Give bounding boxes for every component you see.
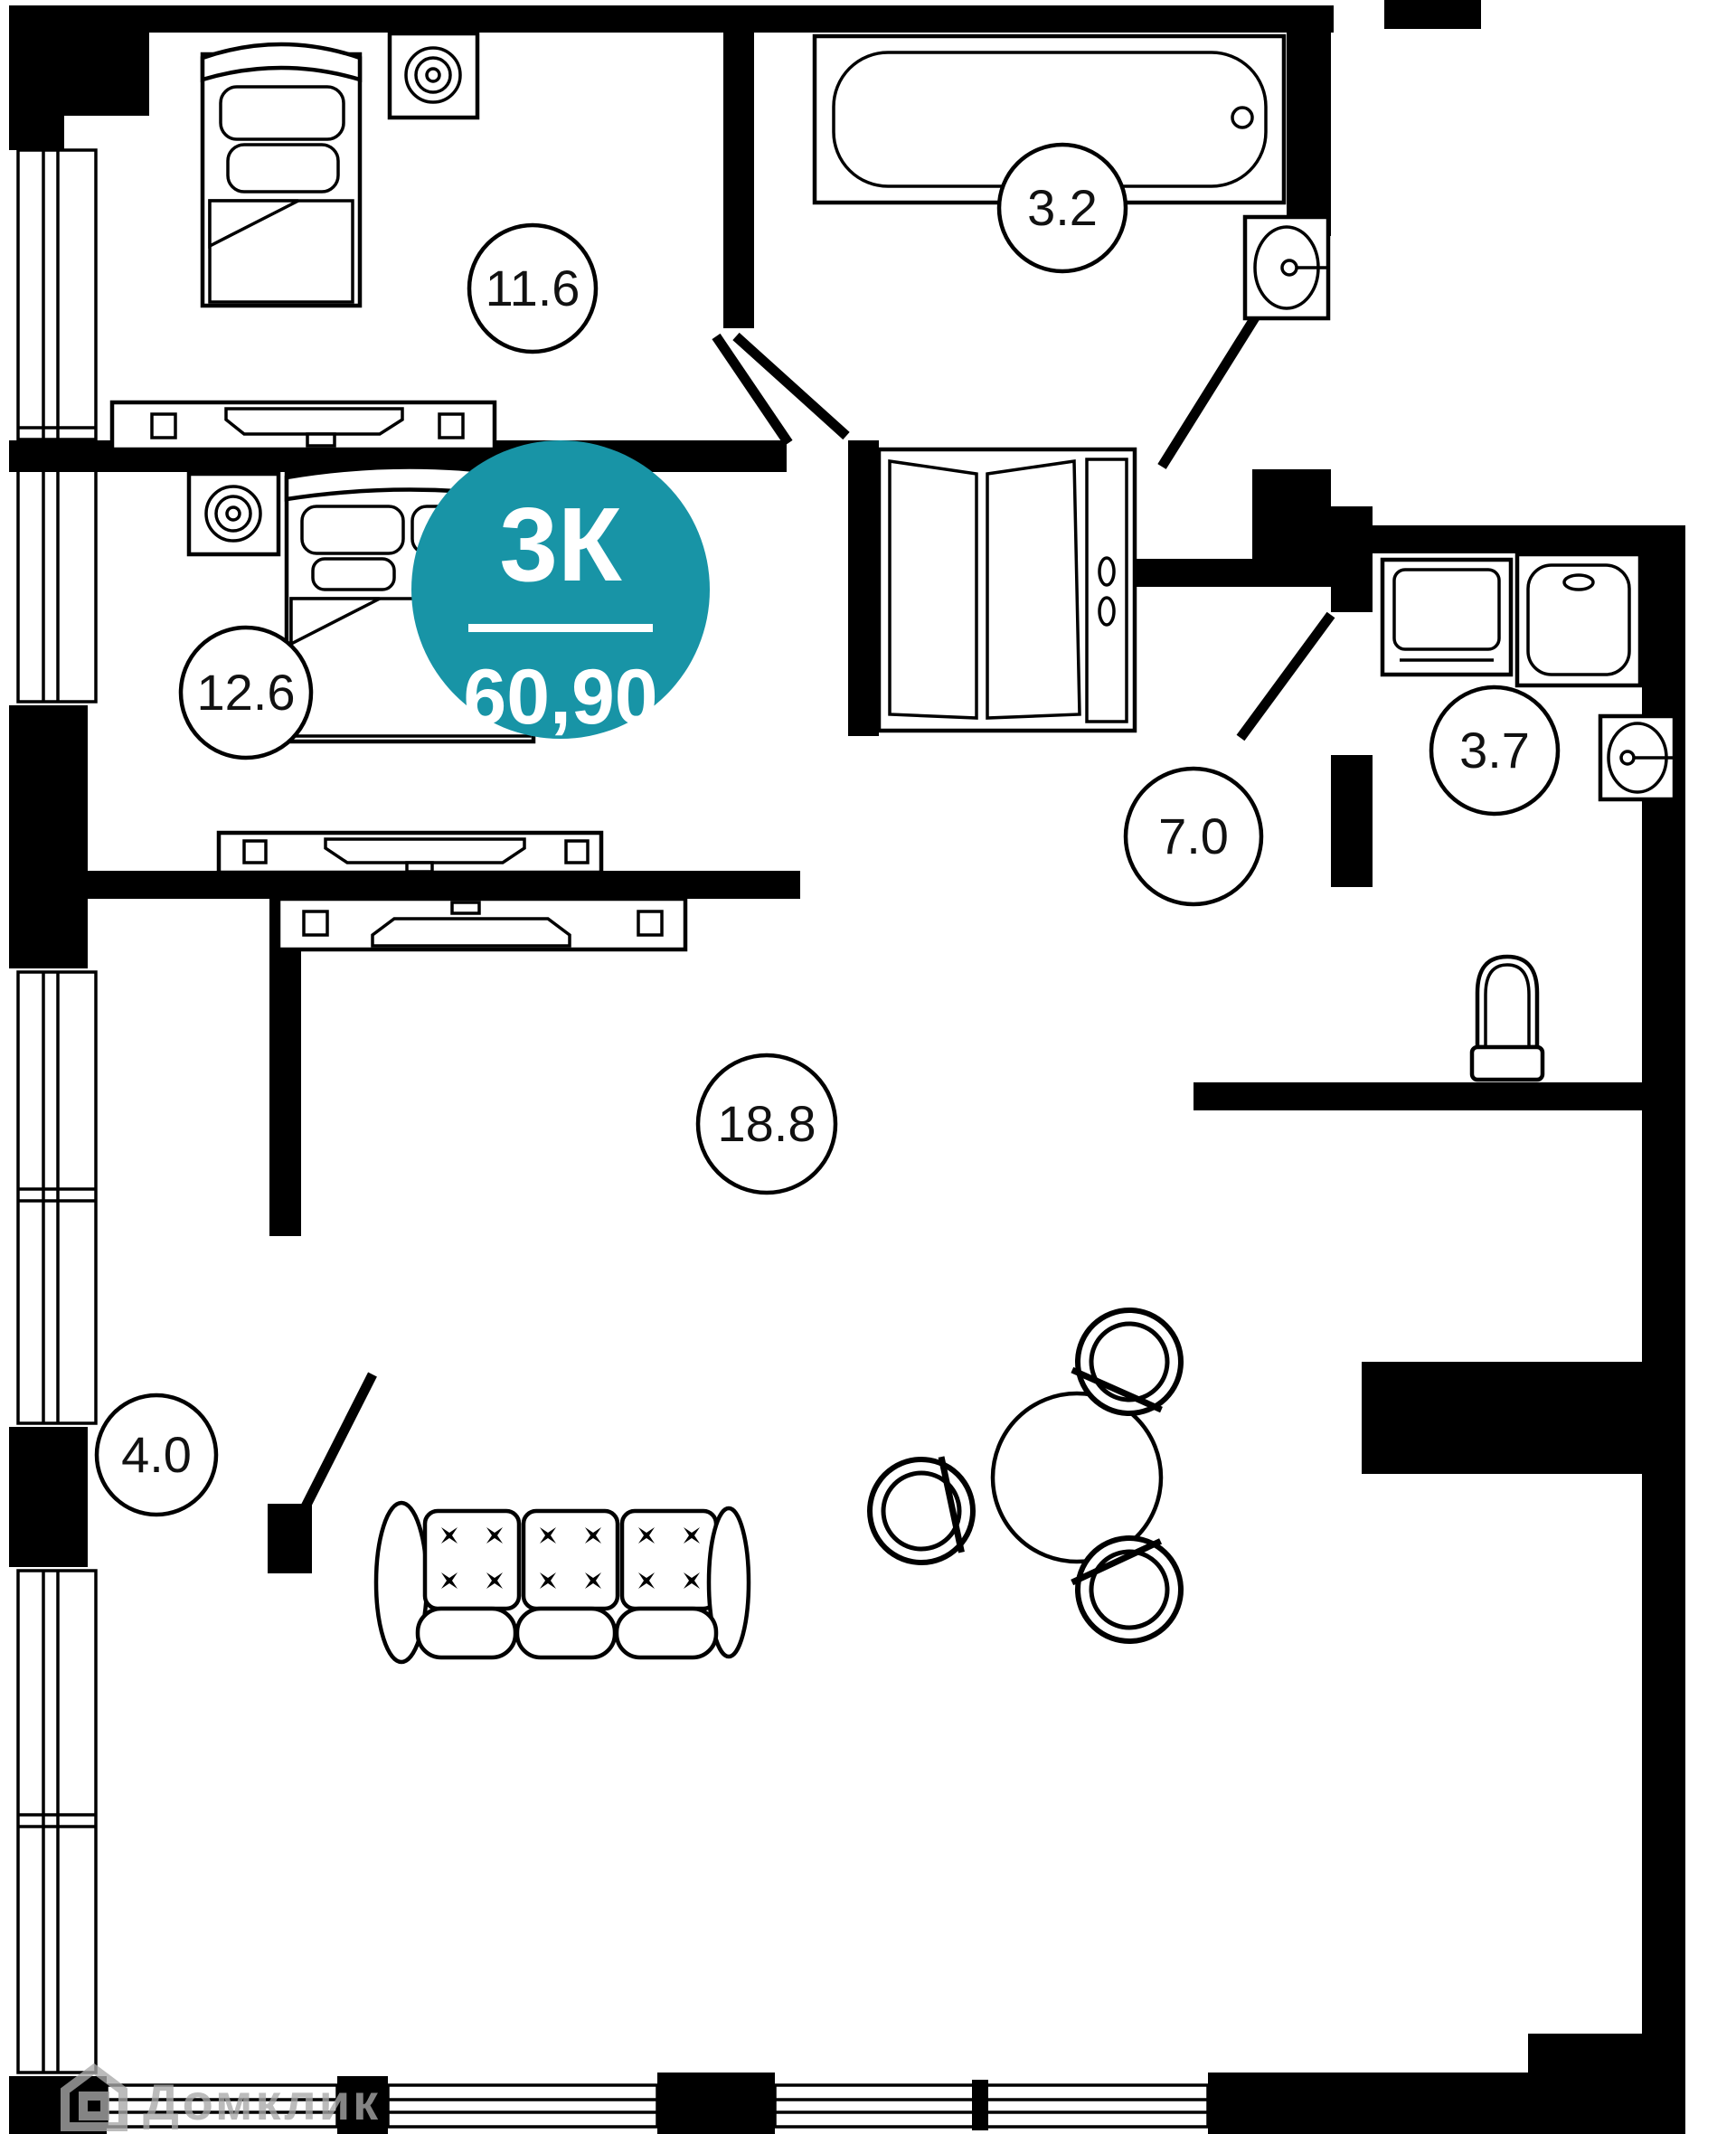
room-area-bathroom2: 3.7 bbox=[1459, 722, 1530, 779]
bedroom1-furniture bbox=[112, 33, 495, 449]
unit-badge: 3К 60,90 bbox=[411, 440, 710, 741]
room-area-bathroom1: 3.2 bbox=[1027, 179, 1098, 236]
window-bottom-middle-icon bbox=[388, 2085, 657, 2127]
watermark-text: Домклик bbox=[143, 2073, 381, 2130]
room-label-bedroom1: 11.6 bbox=[469, 225, 596, 352]
wall bbox=[9, 871, 800, 899]
chair-icon bbox=[860, 1449, 982, 1572]
shower-cabin-icon bbox=[1517, 554, 1640, 685]
wall bbox=[657, 2073, 775, 2134]
room-label-bedroom2: 12.6 bbox=[181, 628, 311, 758]
room-label-living: 18.8 bbox=[698, 1055, 835, 1193]
unit-type-label: 3К bbox=[499, 486, 622, 603]
wardrobe-icon bbox=[879, 449, 1135, 731]
door-leaf-bathroom2-icon bbox=[1241, 615, 1331, 738]
wall bbox=[1208, 2073, 1685, 2134]
room-area-living: 18.8 bbox=[718, 1095, 816, 1152]
tv-stand-icon bbox=[278, 899, 685, 949]
wall bbox=[9, 705, 88, 968]
room-area-hallway: 7.0 bbox=[1158, 807, 1229, 864]
window-bedroom2-icon bbox=[18, 972, 96, 1423]
wall bbox=[9, 5, 1334, 33]
bathroom2-fixtures bbox=[1382, 554, 1675, 1080]
window-living-icon bbox=[775, 2085, 1208, 2127]
room-label-bathroom2: 3.7 bbox=[1431, 687, 1558, 814]
nightstand-speaker-icon bbox=[390, 33, 477, 118]
nightstand-speaker-icon bbox=[189, 474, 278, 554]
room-label-hallway: 7.0 bbox=[1126, 769, 1261, 904]
tv-stand-icon bbox=[112, 402, 495, 449]
walls bbox=[9, 0, 1685, 2134]
wall bbox=[1287, 33, 1331, 236]
sink-icon bbox=[1600, 716, 1675, 799]
room-label-storage: 4.0 bbox=[97, 1395, 216, 1515]
sink-icon bbox=[1245, 217, 1328, 318]
window-storage-icon bbox=[18, 1571, 96, 2073]
single-bed-icon bbox=[203, 44, 360, 306]
wall bbox=[723, 33, 754, 328]
unit-area-value: 60,90 bbox=[463, 654, 657, 741]
tv-stand-icon bbox=[219, 833, 601, 873]
wall bbox=[1362, 1362, 1685, 1474]
unit-badge-divider bbox=[468, 624, 653, 632]
room-area-bedroom2: 12.6 bbox=[197, 664, 296, 721]
wall bbox=[1331, 525, 1373, 612]
wall bbox=[972, 2080, 988, 2130]
living-room-furniture bbox=[278, 899, 1198, 1662]
sofa-icon bbox=[376, 1503, 749, 1662]
wall bbox=[9, 1427, 88, 1567]
door-leaf-storage-icon bbox=[301, 1374, 373, 1516]
room-label-bathroom1: 3.2 bbox=[999, 145, 1126, 271]
wall bbox=[1373, 525, 1685, 553]
room-area-storage: 4.0 bbox=[121, 1426, 192, 1483]
wall bbox=[848, 440, 879, 736]
floor-plan-svg: 11.6 3.2 12.6 7.0 3.7 18.8 4.0 3К bbox=[0, 0, 1736, 2134]
wall bbox=[1384, 0, 1481, 29]
wall bbox=[1252, 469, 1331, 562]
room-area-bedroom1: 11.6 bbox=[486, 260, 580, 316]
wall bbox=[1331, 755, 1373, 887]
floor-plan: 11.6 3.2 12.6 7.0 3.7 18.8 4.0 3К bbox=[0, 0, 1736, 2134]
toilet-icon bbox=[1472, 957, 1543, 1080]
window-bedroom1-icon bbox=[18, 150, 96, 702]
wall bbox=[1193, 1082, 1685, 1110]
washing-machine-icon bbox=[1382, 560, 1511, 675]
chair-icon bbox=[1061, 1521, 1197, 1657]
wall bbox=[9, 5, 64, 150]
chair-icon bbox=[1061, 1294, 1198, 1431]
